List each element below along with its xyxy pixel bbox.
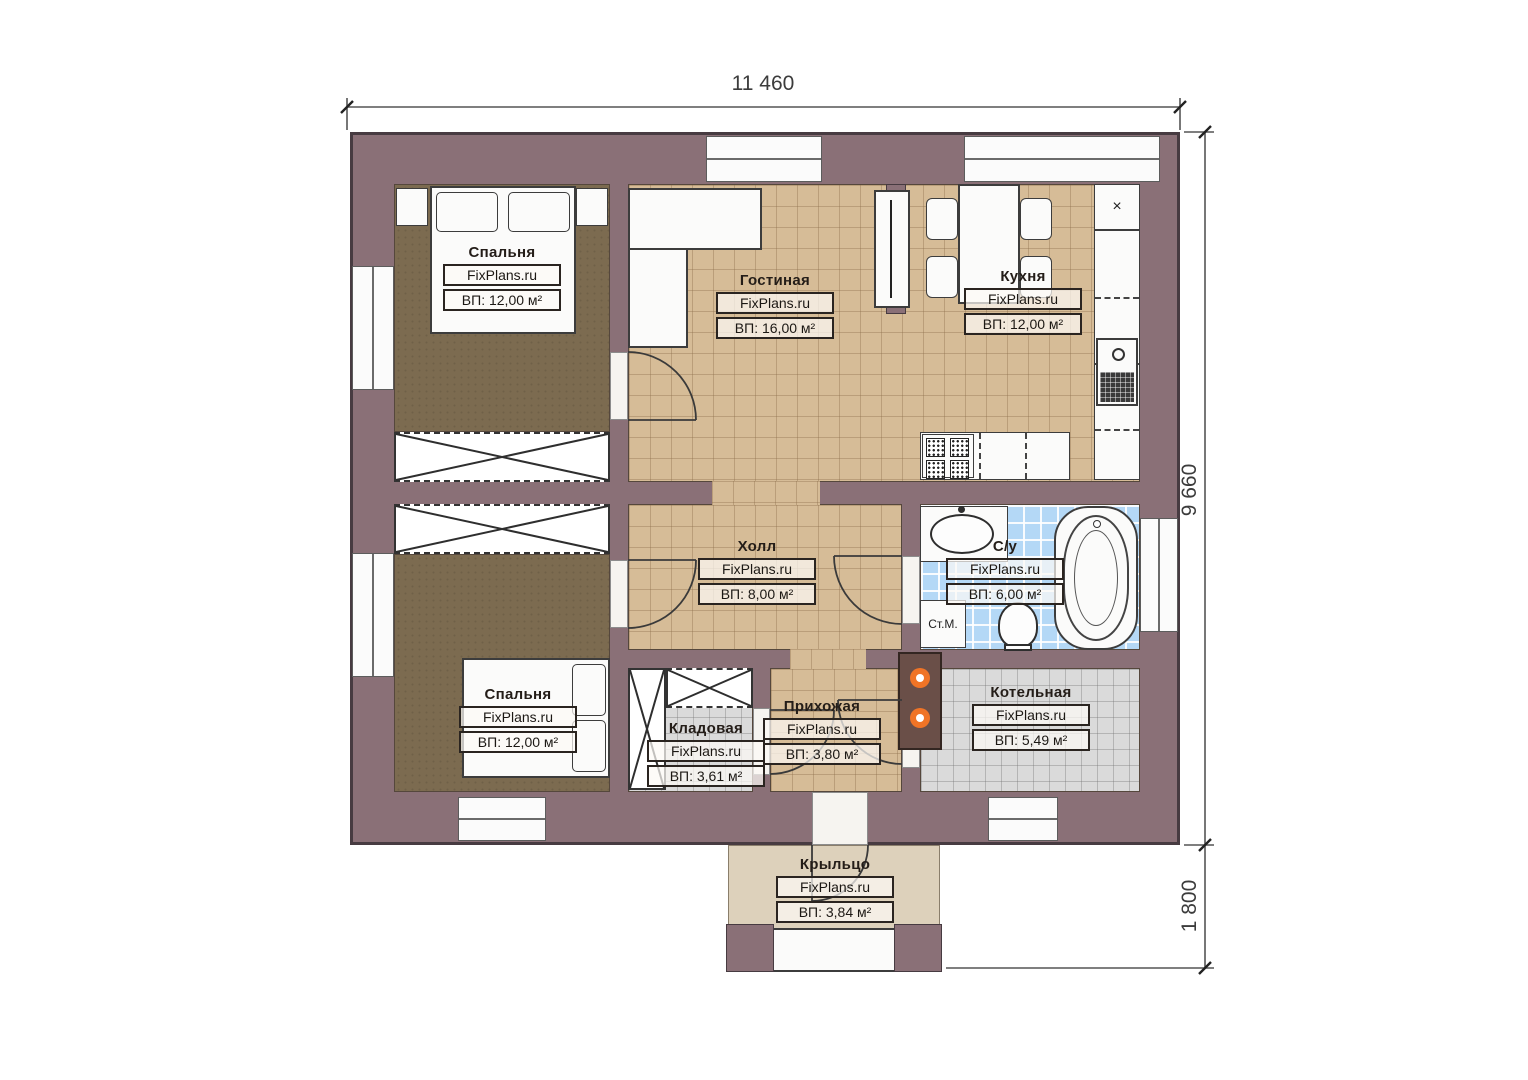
opening-hall-entryway [790, 649, 866, 669]
room-area: ВП: 16,00 м² [716, 317, 834, 339]
boiler-icon [898, 652, 942, 750]
room-label-hall: Холл FixPlans.ru ВП: 8,00 м² [698, 538, 816, 605]
room-area: ВП: 6,00 м² [946, 583, 1064, 605]
wardrobe-icon [666, 668, 753, 708]
room-label-boiler-room: Котельная FixPlans.ru ВП: 5,49 м² [972, 684, 1090, 751]
vent-symbol: × [1095, 185, 1139, 229]
window-bottom-boiler [988, 797, 1058, 841]
nightstand-icon [576, 188, 608, 226]
opening-living-hall [712, 481, 820, 505]
window-left-bedroom-2 [352, 553, 394, 677]
room-label-entryway: Прихожая FixPlans.ru ВП: 3,80 м² [763, 698, 881, 765]
watermark: FixPlans.ru [972, 704, 1090, 726]
room-name: Котельная [990, 684, 1071, 701]
faucet-icon [958, 506, 965, 513]
watermark: FixPlans.ru [763, 718, 881, 740]
room-label-bathroom: С/у FixPlans.ru ВП: 6,00 м² [946, 538, 1064, 605]
watermark: FixPlans.ru [698, 558, 816, 580]
pillow-icon [572, 664, 606, 716]
dimension-porch-label: 1 800 [1178, 880, 1202, 933]
washing-machine-label: Ст.М. [921, 601, 965, 647]
room-name: С/у [993, 538, 1017, 555]
door-gap-bathroom [902, 556, 920, 624]
sofa-icon [628, 188, 762, 250]
room-area: ВП: 3,61 м² [647, 765, 765, 787]
room-area: ВП: 12,00 м² [459, 731, 577, 753]
tv-unit-icon [874, 190, 910, 308]
stove-icon [922, 434, 974, 478]
room-label-porch: Крыльцо FixPlans.ru ВП: 3,84 м² [776, 856, 894, 923]
room-name: Спальня [485, 686, 552, 703]
room-name: Кухня [1000, 268, 1045, 285]
nightstand-icon [396, 188, 428, 226]
room-name: Прихожая [784, 698, 860, 715]
room-area: ВП: 3,84 м² [776, 901, 894, 923]
toilet-base [1004, 644, 1032, 651]
room-label-living-room: Гостиная FixPlans.ru ВП: 16,00 м² [716, 272, 834, 339]
watermark: FixPlans.ru [776, 876, 894, 898]
chair-icon [926, 198, 958, 240]
door-gap-entry [812, 792, 868, 845]
vent-box: × [1094, 184, 1140, 230]
door-gap-bedroom-1 [610, 352, 628, 420]
room-area: ВП: 12,00 м² [443, 289, 561, 311]
window-right-bathroom [1140, 518, 1178, 632]
floor-plan: × Ст.М. [0, 0, 1528, 1080]
pillow-icon [572, 720, 606, 772]
room-name: Крыльцо [800, 856, 870, 873]
room-name: Холл [738, 538, 777, 555]
wardrobe-icon [394, 432, 610, 482]
dimension-height-label: 9 660 [1178, 464, 1202, 517]
toilet-icon [998, 602, 1038, 648]
room-label-kitchen: Кухня FixPlans.ru ВП: 12,00 м² [964, 268, 1082, 335]
pillow-icon [436, 192, 498, 232]
window-left-bedroom-1 [352, 266, 394, 390]
watermark: FixPlans.ru [443, 264, 561, 286]
room-name: Кладовая [669, 720, 743, 737]
door-gap-bedroom-2 [610, 560, 628, 628]
room-label-bedroom-1: Спальня FixPlans.ru ВП: 12,00 м² [443, 244, 561, 311]
watermark: FixPlans.ru [716, 292, 834, 314]
window-top-kitchen [964, 136, 1160, 182]
window-bottom-bedroom-2 [458, 797, 546, 841]
watermark: FixPlans.ru [964, 288, 1082, 310]
porch-pier-left [726, 924, 774, 972]
chair-icon [1020, 198, 1052, 240]
kitchen-sink-icon [1096, 338, 1138, 406]
wardrobe-icon [394, 504, 610, 554]
washing-machine-box: Ст.М. [920, 600, 966, 648]
room-area: ВП: 12,00 м² [964, 313, 1082, 335]
window-top-living [706, 136, 822, 182]
room-name: Спальня [469, 244, 536, 261]
porch-pier-right [894, 924, 942, 972]
watermark: FixPlans.ru [647, 740, 765, 762]
room-label-bedroom-2: Спальня FixPlans.ru ВП: 12,00 м² [459, 686, 577, 753]
dimension-width-label: 11 460 [732, 72, 795, 96]
room-area: ВП: 8,00 м² [698, 583, 816, 605]
watermark: FixPlans.ru [459, 706, 577, 728]
room-label-storage: Кладовая FixPlans.ru ВП: 3,61 м² [647, 720, 765, 787]
watermark: FixPlans.ru [946, 558, 1064, 580]
room-area: ВП: 3,80 м² [763, 743, 881, 765]
sofa-icon [628, 248, 688, 348]
room-name: Гостиная [740, 272, 810, 289]
pillow-icon [508, 192, 570, 232]
chair-icon [926, 256, 958, 298]
tv-screen-icon [890, 200, 892, 298]
bathtub-icon [1054, 506, 1138, 650]
room-area: ВП: 5,49 м² [972, 729, 1090, 751]
